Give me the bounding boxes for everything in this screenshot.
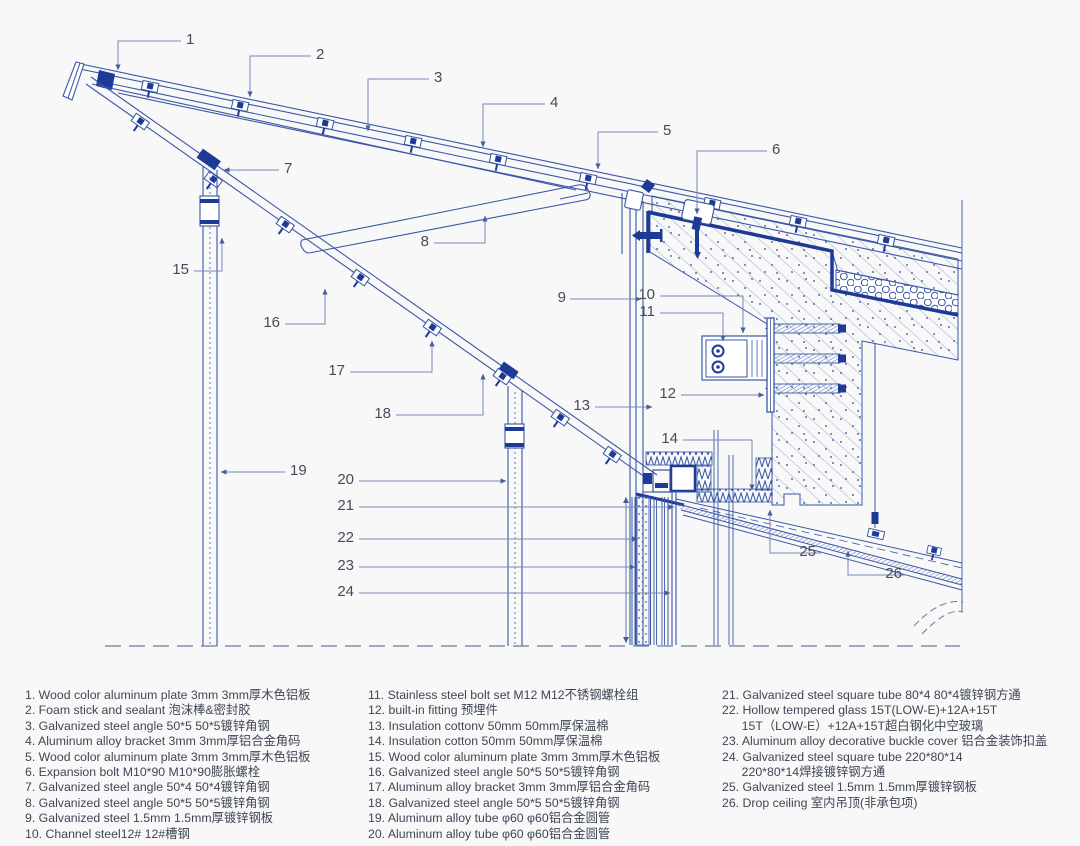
insulation-band <box>697 466 711 490</box>
callout-number-24: 24 <box>328 584 354 600</box>
break-squiggle <box>914 602 963 627</box>
callout-number-15: 15 <box>163 262 189 278</box>
legend-item: 17. Aluminum alloy bracket 3mm 3mm厚铝合金角码 <box>368 780 718 795</box>
callout-number-6: 6 <box>772 142 798 158</box>
callout-number-8: 8 <box>403 234 429 250</box>
legend-item: 25. Galvanized steel 1.5mm 1.5mm厚镀锌钢板 <box>722 780 1077 795</box>
square-tube-220x80 <box>672 491 676 645</box>
legend-item: 19. Aluminum alloy tube φ60 φ60铝合金圆管 <box>368 811 718 826</box>
insulation-band <box>646 452 712 465</box>
legend-item: 10. Channel steel12# 12#槽钢 <box>25 827 365 842</box>
legend-item: 1. Wood color aluminum plate 3mm 3mm厚木色铝… <box>25 688 365 703</box>
extent-line <box>623 497 629 643</box>
callout-number-9: 9 <box>540 290 566 306</box>
legend-item: 20. Aluminum alloy tube φ60 φ60铝合金圆管 <box>368 827 718 842</box>
callout-number-26: 26 <box>876 566 902 582</box>
ceiling-hanger <box>867 344 884 540</box>
callout-number-20: 20 <box>328 472 354 488</box>
insulation-band <box>697 489 772 502</box>
aluminum-tube-column-right <box>505 386 524 646</box>
legend-item: 11. Stainless steel bolt set M12 M12不锈钢螺… <box>368 688 718 703</box>
glass-panes <box>654 497 665 645</box>
square-tube-80x4 <box>671 466 695 491</box>
callout-number-13: 13 <box>564 398 590 414</box>
interior-wall-lines <box>714 430 733 645</box>
callout-number-7: 7 <box>284 161 310 177</box>
callout-number-25: 25 <box>790 544 816 560</box>
legend-item: 16. Galvanized steel angle 50*5 50*5镀锌角钢 <box>368 765 718 780</box>
callout-number-18: 18 <box>365 406 391 422</box>
aluminum-tube-column-left <box>200 166 219 646</box>
callout-number-4: 4 <box>550 95 576 111</box>
wall-insulation <box>637 497 649 645</box>
legend-column-3: 21. Galvanized steel square tube 80*4 80… <box>722 688 1077 811</box>
legend-item: 18. Galvanized steel angle 50*5 50*5镀锌角钢 <box>368 796 718 811</box>
legend-column-2: 11. Stainless steel bolt set M12 M12不锈钢螺… <box>368 688 718 842</box>
callout-number-19: 19 <box>290 463 316 479</box>
callout-number-10: 10 <box>629 287 655 303</box>
insulation-band <box>756 458 772 490</box>
legend-item: 2. Foam stick and sealant 泡沫棒&密封胶 <box>25 703 365 718</box>
legend-item: 22. Hollow tempered glass 15T(LOW-E)+12A… <box>722 703 1077 734</box>
legend-item: 15. Wood color aluminum plate 3mm 3mm厚木色… <box>368 750 718 765</box>
callout-number-22: 22 <box>328 530 354 546</box>
callout-number-11: 11 <box>629 304 655 320</box>
legend-item: 12. built-in fitting 预埋件 <box>368 703 718 718</box>
legend-item: 13. Insulation cottonv 50mm 50mm厚保温棉 <box>368 719 718 734</box>
callout-number-14: 14 <box>652 431 678 447</box>
legend-item: 5. Wood color aluminum plate 3mm 3mm厚木色铝… <box>25 750 365 765</box>
construction-detail-sheet: 1 2 3 4 5 6 7 8 9 10 11 12 13 14 15 16 1… <box>0 0 1080 846</box>
callout-number-1: 1 <box>186 32 212 48</box>
legend-item: 9. Galvanized steel 1.5mm 1.5mm厚镀锌钢板 <box>25 811 365 826</box>
legend-item: 26. Drop ceiling 室内吊顶(非承包项) <box>722 796 1077 811</box>
break-squiggle <box>922 611 963 634</box>
callout-number-12: 12 <box>650 386 676 402</box>
callout-number-3: 3 <box>434 70 460 86</box>
legend-item: 6. Expansion bolt M10*90 M10*90膨胀螺栓 <box>25 765 365 780</box>
legend-item: 21. Galvanized steel square tube 80*4 80… <box>722 688 1077 703</box>
callout-number-16: 16 <box>254 315 280 331</box>
legend-item: 4. Aluminum alloy bracket 3mm 3mm厚铝合金角码 <box>25 734 365 749</box>
legend-item: 8. Galvanized steel angle 50*5 50*5镀锌角钢 <box>25 796 365 811</box>
legend-column-1: 1. Wood color aluminum plate 3mm 3mm厚木色铝… <box>25 688 365 842</box>
callout-number-21: 21 <box>328 498 354 514</box>
legend-item: 24. Galvanized steel square tube 220*80*… <box>722 750 1077 781</box>
legend-item: 7. Galvanized steel angle 50*4 50*4镀锌角钢 <box>25 780 365 795</box>
legend-item: 23. Aluminum alloy decorative buckle cov… <box>722 734 1077 749</box>
legend-item: 14. Insulation cotton 50mm 50mm厚保温棉 <box>368 734 718 749</box>
legend-item: 3. Galvanized steel angle 50*5 50*5镀锌角钢 <box>25 719 365 734</box>
callout-number-23: 23 <box>328 558 354 574</box>
callout-number-5: 5 <box>663 123 689 139</box>
callout-number-2: 2 <box>316 47 342 63</box>
callout-number-17: 17 <box>319 363 345 379</box>
